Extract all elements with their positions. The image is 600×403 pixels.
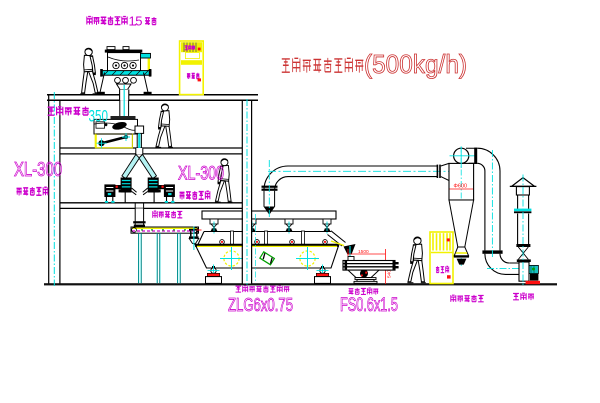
svg-text:1500: 1500 [358,249,369,255]
svg-text:FS0.6x1.5: FS0.6x1.5 [340,295,398,316]
svg-text:XL-300: XL-300 [14,159,62,181]
svg-text:350: 350 [89,107,109,126]
svg-text:XL-300: XL-300 [178,164,224,185]
svg-text:1.5: 1.5 [129,14,143,29]
svg-text:(500kg/h): (500kg/h) [364,49,467,79]
svg-text:ZLG6x0.75: ZLG6x0.75 [228,294,293,315]
svg-text:Φ600: Φ600 [454,184,468,190]
svg-text:540: 540 [387,270,393,278]
